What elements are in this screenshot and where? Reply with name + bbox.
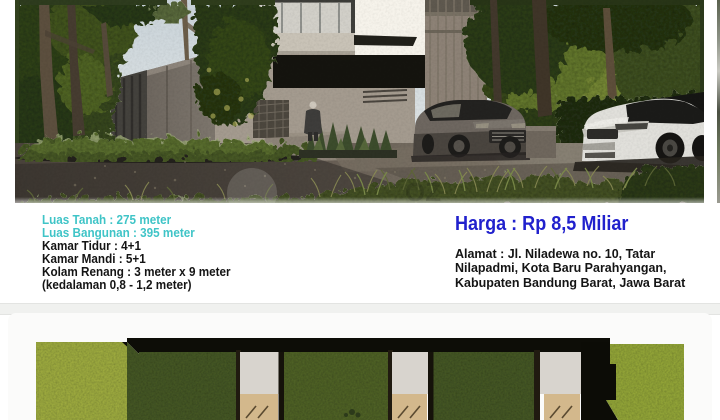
svg-text:OZ: OZ: [405, 177, 441, 203]
